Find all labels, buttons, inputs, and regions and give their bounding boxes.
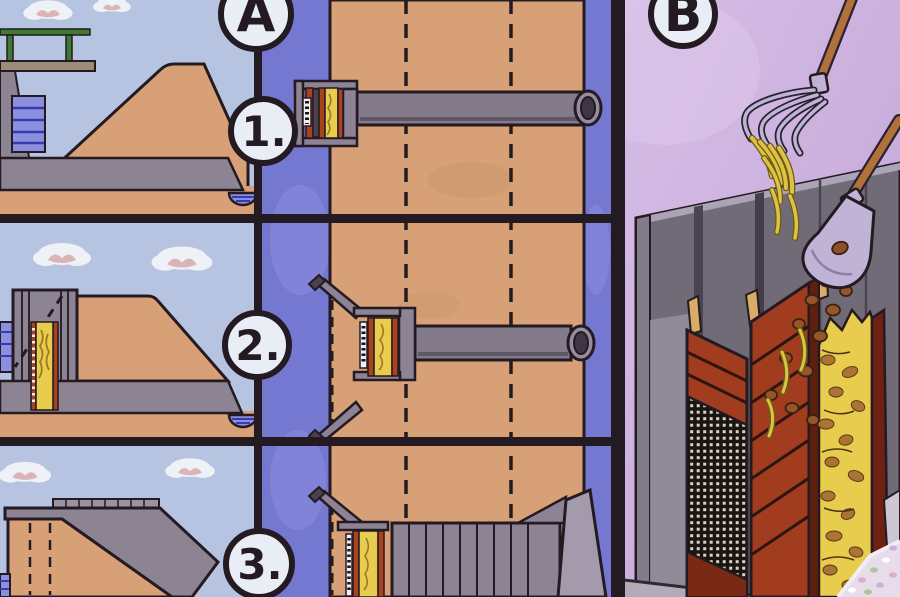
poster-photo: A 1. 2. 3. B: [0, 0, 900, 597]
badge-step-1: 1.: [228, 96, 298, 166]
clamp-scene-1: [0, 0, 257, 223]
clamp-scene-3: [0, 446, 254, 597]
section-divider-1: [0, 214, 624, 223]
silo-cross-section: [254, 0, 611, 597]
platform: [0, 61, 95, 71]
cloud-icon: [93, 0, 131, 12]
straw-potato-fill: [818, 310, 872, 597]
step-connector-line: [254, 0, 262, 597]
support-stake: [688, 296, 701, 334]
clamp-scene-2: [0, 223, 257, 438]
badge-step-3: 3.: [223, 528, 295, 597]
section-divider-2: [0, 437, 624, 446]
straw-core: [325, 88, 338, 138]
section-a-field-panels: [0, 0, 257, 597]
panel-border: [611, 0, 625, 597]
straw-stack: [0, 322, 13, 372]
straw-stack: [12, 96, 45, 152]
badge-step-2: 2.: [222, 310, 292, 380]
straw-stack: [0, 574, 10, 597]
straw-chimney: [31, 322, 58, 410]
press-screw: [346, 534, 352, 596]
soil-strip: [0, 411, 254, 438]
ground-band: [0, 158, 243, 190]
poster-illustration: [0, 0, 900, 597]
